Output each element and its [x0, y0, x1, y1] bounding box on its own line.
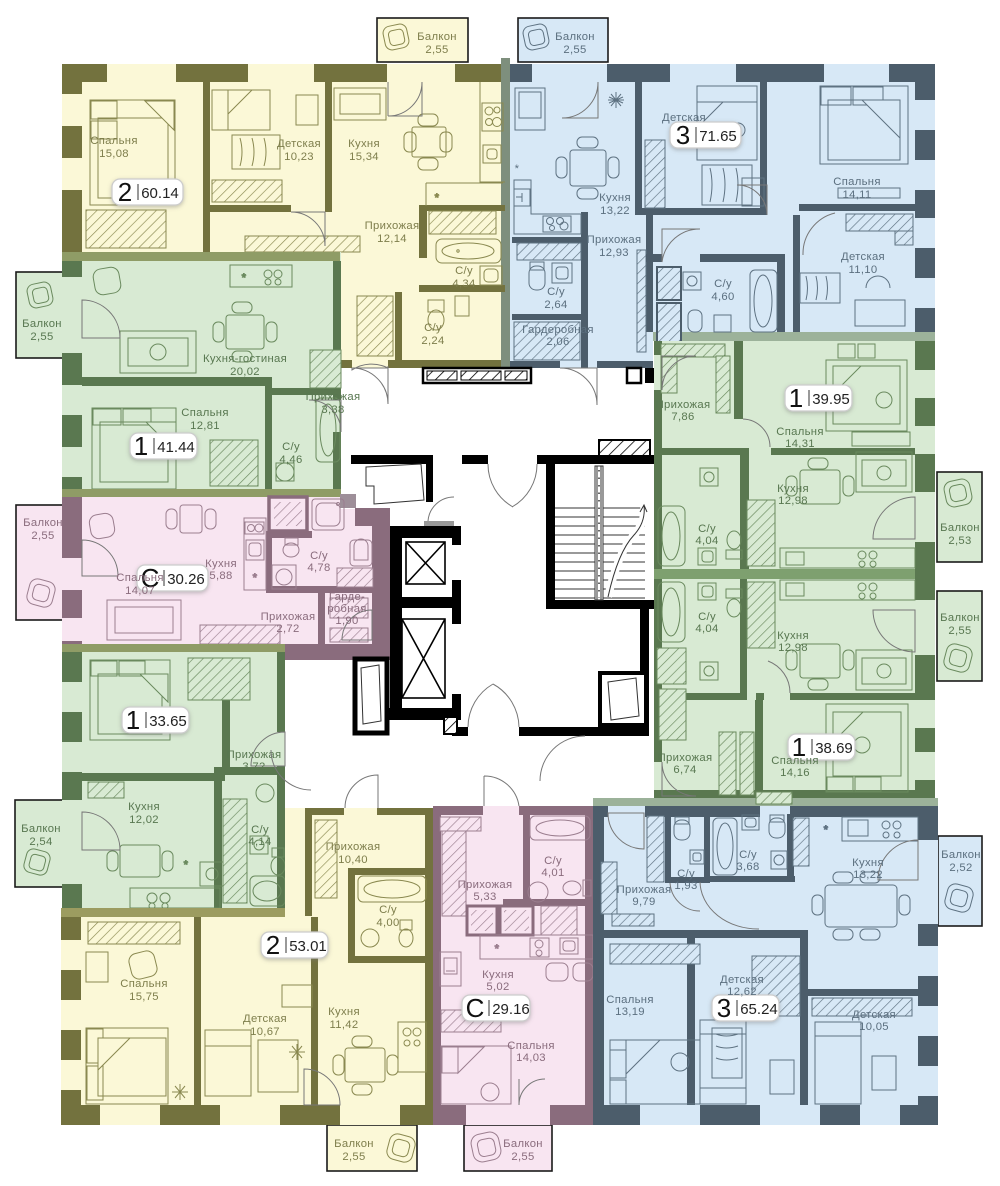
svg-text:Кухня: Кухня — [777, 630, 809, 642]
svg-text:*: * — [495, 943, 500, 955]
svg-text:12,62: 12,62 — [727, 986, 757, 998]
svg-text:3,38: 3,38 — [321, 404, 344, 416]
svg-text:Балкон: Балкон — [940, 612, 980, 624]
svg-text:11,42: 11,42 — [330, 1019, 359, 1031]
svg-text:*: * — [515, 163, 520, 175]
svg-text:13,22: 13,22 — [600, 205, 630, 217]
svg-text:1,93: 1,93 — [674, 880, 697, 892]
svg-text:Гардеробная: Гардеробная — [522, 324, 594, 336]
svg-text:С/у: С/у — [251, 824, 269, 836]
svg-text:Кухня: Кухня — [777, 483, 809, 495]
svg-text:С/у: С/у — [282, 441, 300, 453]
svg-text:1: 1 — [134, 431, 148, 461]
svg-text:38.69: 38.69 — [815, 740, 853, 757]
svg-text:4,00: 4,00 — [376, 917, 399, 929]
svg-text:С/у: С/у — [547, 286, 565, 298]
svg-text:робная: робная — [327, 603, 366, 615]
svg-text:4,60: 4,60 — [711, 291, 734, 303]
svg-text:5,88: 5,88 — [209, 570, 232, 582]
svg-text:2,55: 2,55 — [342, 1151, 365, 1163]
svg-text:Спальня: Спальня — [771, 755, 819, 767]
svg-text:10,40: 10,40 — [338, 854, 368, 866]
svg-text:2,52: 2,52 — [949, 862, 972, 874]
svg-text:9,79: 9,79 — [632, 896, 655, 908]
svg-text:Спальня: Спальня — [181, 407, 229, 419]
svg-text:4,14: 4,14 — [248, 836, 271, 848]
svg-text:Кухня: Кухня — [128, 801, 160, 813]
svg-text:Прихожая: Прихожая — [587, 234, 642, 246]
svg-text:Прихожая: Прихожая — [227, 749, 282, 761]
svg-text:Спальня: Спальня — [120, 978, 168, 990]
svg-text:2,54: 2,54 — [29, 836, 52, 848]
svg-text:3,68: 3,68 — [736, 861, 759, 873]
svg-text:7,86: 7,86 — [671, 411, 694, 423]
svg-text:Детская: Детская — [852, 1009, 896, 1021]
svg-text:4,04: 4,04 — [695, 623, 718, 635]
svg-text:4,46: 4,46 — [279, 454, 302, 466]
svg-text:Спальня: Спальня — [116, 572, 164, 584]
svg-text:12,93: 12,93 — [599, 247, 629, 259]
svg-text:Кухня: Кухня — [482, 969, 514, 981]
svg-text:Детская: Детская — [662, 112, 706, 124]
svg-text:10,67: 10,67 — [250, 1026, 280, 1038]
svg-text:53.01: 53.01 — [289, 938, 327, 955]
svg-text:12,14: 12,14 — [377, 233, 407, 245]
svg-text:11,10: 11,10 — [849, 264, 878, 276]
svg-text:Прихожая: Прихожая — [306, 391, 361, 403]
svg-text:14,31: 14,31 — [785, 438, 815, 450]
svg-text:65.24: 65.24 — [740, 1001, 778, 1018]
svg-text:С/у: С/у — [424, 322, 442, 334]
svg-text:14,16: 14,16 — [780, 767, 810, 779]
svg-text:С/у: С/у — [698, 523, 716, 535]
svg-text:С/у: С/у — [739, 849, 757, 861]
svg-text:14,03: 14,03 — [516, 1052, 546, 1064]
svg-text:33.65: 33.65 — [149, 713, 187, 730]
svg-text:Прихожая: Прихожая — [656, 399, 711, 411]
svg-text:Кухня-гостиная: Кухня-гостиная — [203, 353, 287, 365]
svg-text:30.26: 30.26 — [167, 571, 205, 588]
svg-text:13,22: 13,22 — [853, 869, 883, 881]
svg-text:15,08: 15,08 — [99, 148, 129, 160]
svg-text:Гарде-: Гарде- — [329, 591, 365, 603]
svg-text:Балкон: Балкон — [941, 849, 981, 861]
svg-text:Спальня: Спальня — [90, 135, 138, 147]
svg-text:Спальня: Спальня — [606, 994, 654, 1006]
svg-text:2: 2 — [266, 930, 280, 960]
svg-text:14,11: 14,11 — [843, 189, 872, 201]
svg-text:С/у: С/у — [698, 611, 716, 623]
svg-text:Детская: Детская — [277, 138, 321, 150]
svg-text:Детская: Детская — [243, 1013, 287, 1025]
svg-text:3,72: 3,72 — [242, 761, 265, 773]
svg-text:6,74: 6,74 — [673, 764, 696, 776]
svg-text:41.44: 41.44 — [157, 439, 195, 456]
svg-text:1: 1 — [126, 705, 140, 735]
svg-text:Балкон: Балкон — [417, 31, 457, 43]
svg-text:С/у: С/у — [677, 868, 695, 880]
svg-text:2,53: 2,53 — [948, 535, 971, 547]
svg-text:2,24: 2,24 — [421, 335, 444, 347]
svg-text:Спальня: Спальня — [833, 176, 881, 188]
svg-text:Балкон: Балкон — [334, 1138, 374, 1150]
svg-text:39.95: 39.95 — [812, 391, 850, 408]
svg-text:Спальня: Спальня — [776, 426, 824, 438]
svg-text:2,55: 2,55 — [511, 1151, 534, 1163]
svg-text:Детская: Детская — [841, 251, 885, 263]
svg-text:71.65: 71.65 — [699, 128, 737, 145]
svg-text:Балкон: Балкон — [21, 823, 61, 835]
svg-text:12,98: 12,98 — [778, 495, 808, 507]
svg-text:1: 1 — [789, 383, 803, 413]
svg-text:Балкон: Балкон — [940, 522, 980, 534]
svg-text:60.14: 60.14 — [141, 185, 179, 202]
svg-text:13,19: 13,19 — [615, 1006, 645, 1018]
svg-text:Кухня: Кухня — [599, 192, 631, 204]
svg-text:2,72: 2,72 — [276, 623, 299, 635]
svg-text:Прихожая: Прихожая — [658, 752, 713, 764]
svg-text:2,55: 2,55 — [563, 44, 586, 56]
svg-text:Балкон: Балкон — [22, 318, 62, 330]
svg-text:4,01: 4,01 — [541, 867, 564, 879]
svg-text:Прихожая: Прихожая — [326, 841, 381, 853]
svg-text:20,02: 20,02 — [230, 366, 260, 378]
svg-text:2,64: 2,64 — [544, 299, 567, 311]
svg-text:Прихожая: Прихожая — [458, 879, 513, 891]
svg-text:С: С — [466, 993, 485, 1023]
svg-text:С/у: С/у — [310, 550, 328, 562]
svg-text:4,04: 4,04 — [695, 535, 718, 547]
svg-text:14,07: 14,07 — [125, 585, 155, 597]
svg-text:15,34: 15,34 — [349, 151, 379, 163]
svg-text:Детская: Детская — [720, 974, 764, 986]
svg-text:3: 3 — [676, 120, 690, 150]
svg-text:*: * — [242, 272, 247, 284]
svg-text:Кухня: Кухня — [328, 1006, 360, 1018]
svg-text:2,55: 2,55 — [30, 331, 53, 343]
svg-text:10,05: 10,05 — [859, 1021, 889, 1033]
svg-text:С/у: С/у — [544, 855, 562, 867]
svg-text:С/у: С/у — [379, 904, 397, 916]
svg-text:2: 2 — [118, 177, 132, 207]
svg-text:Кухня: Кухня — [852, 857, 884, 869]
svg-text:Балкон: Балкон — [555, 31, 595, 43]
svg-text:10,23: 10,23 — [284, 151, 314, 163]
svg-text:15,75: 15,75 — [129, 991, 159, 1003]
svg-text:Спальня: Спальня — [507, 1040, 555, 1052]
svg-text:*: * — [824, 824, 829, 836]
svg-text:2,06: 2,06 — [546, 336, 569, 348]
svg-text:С/у: С/у — [714, 278, 732, 290]
svg-text:Прихожая: Прихожая — [261, 611, 316, 623]
svg-text:Балкон: Балкон — [23, 517, 63, 529]
svg-text:Балкон: Балкон — [503, 1138, 543, 1150]
svg-text:Прихожая: Прихожая — [617, 884, 672, 896]
svg-text:4,78: 4,78 — [307, 562, 330, 574]
svg-text:2,55: 2,55 — [31, 530, 54, 542]
svg-text:4,34: 4,34 — [452, 278, 475, 290]
svg-text:Кухня: Кухня — [348, 138, 380, 150]
svg-text:2,55: 2,55 — [948, 625, 971, 637]
svg-text:*: * — [435, 192, 440, 204]
svg-text:12,02: 12,02 — [129, 814, 159, 826]
svg-text:*: * — [253, 572, 258, 584]
svg-text:1,90: 1,90 — [335, 615, 358, 627]
svg-text:5,02: 5,02 — [486, 981, 509, 993]
svg-text:*: * — [184, 859, 189, 871]
svg-text:С/у: С/у — [455, 265, 473, 277]
svg-text:Кухня: Кухня — [205, 558, 237, 570]
svg-text:12,81: 12,81 — [190, 420, 220, 432]
svg-text:Прихожая: Прихожая — [365, 220, 420, 232]
svg-text:5,33: 5,33 — [473, 891, 496, 903]
svg-text:12,98: 12,98 — [778, 642, 808, 654]
svg-text:2,55: 2,55 — [425, 44, 448, 56]
svg-text:29.16: 29.16 — [492, 1001, 530, 1018]
